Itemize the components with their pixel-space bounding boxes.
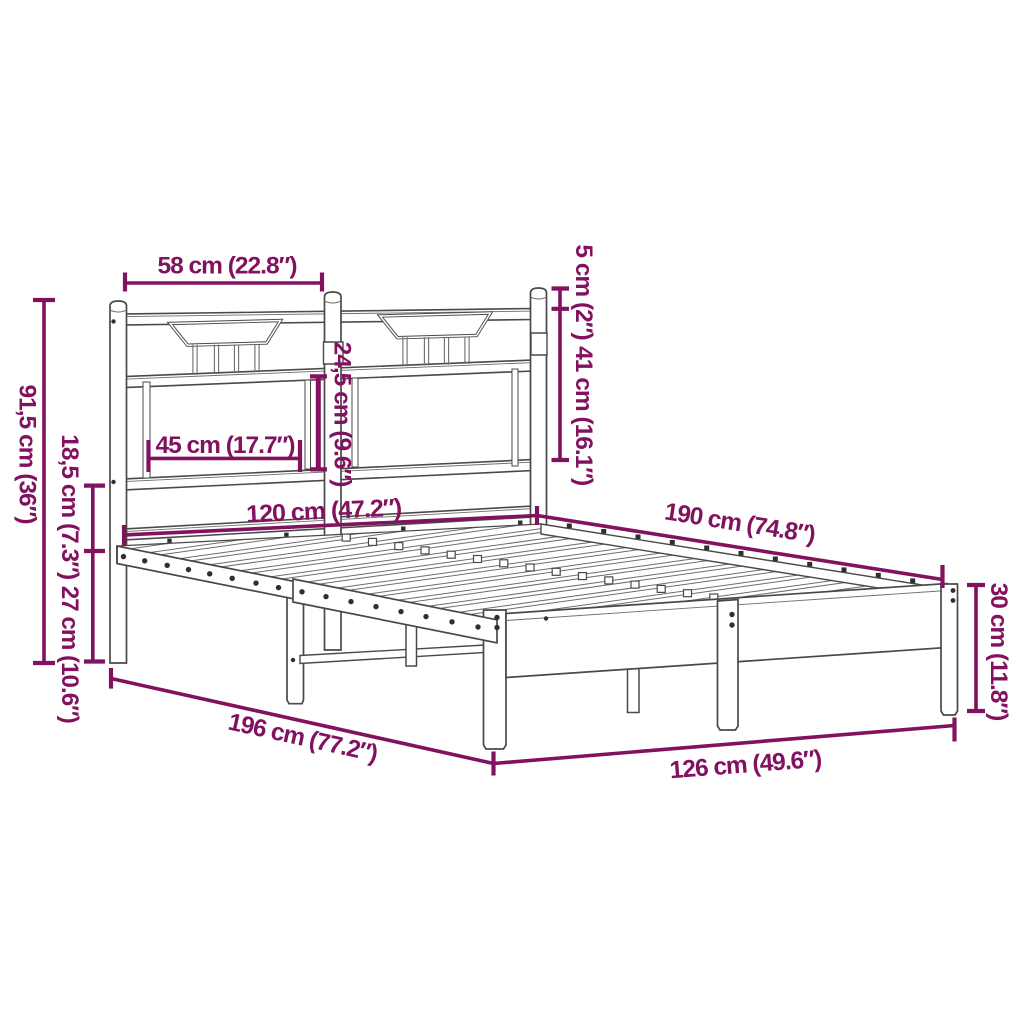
svg-text:45 cm (17.7″): 45 cm (17.7″) bbox=[155, 432, 294, 459]
svg-text:18,5 cm (7.3″): 18,5 cm (7.3″) bbox=[56, 434, 83, 579]
svg-text:30 cm (11.8″): 30 cm (11.8″) bbox=[985, 583, 1012, 721]
svg-text:24,5 cm (9.6″): 24,5 cm (9.6″) bbox=[329, 342, 356, 487]
svg-text:58 cm (22.8″): 58 cm (22.8″) bbox=[157, 252, 296, 279]
svg-text:5 cm (2″): 5 cm (2″) bbox=[570, 244, 597, 339]
svg-text:41 cm (16.1″): 41 cm (16.1″) bbox=[570, 346, 597, 485]
svg-text:91,5 cm (36″): 91,5 cm (36″) bbox=[14, 384, 41, 523]
svg-text:27 cm (10.6″): 27 cm (10.6″) bbox=[56, 586, 83, 723]
